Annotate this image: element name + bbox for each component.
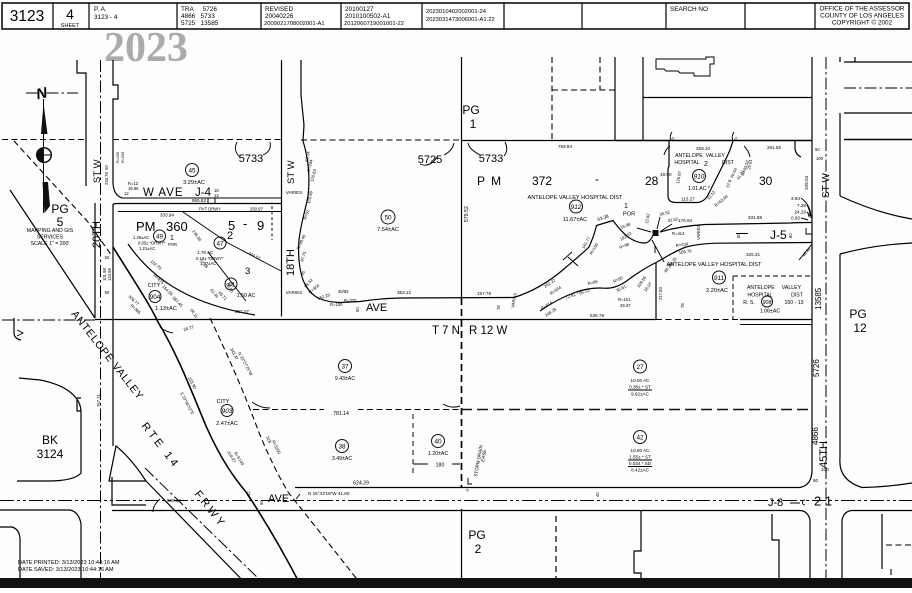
svg-text:908: 908 — [763, 300, 772, 306]
svg-text:TRA 5726: TRA 5726 — [181, 6, 217, 13]
svg-text:12: 12 — [214, 193, 219, 198]
svg-text:157.78: 157.78 — [477, 291, 491, 296]
svg-text:40: 40 — [595, 492, 600, 497]
svg-text:1: 1 — [624, 203, 628, 210]
svg-text:1.06±AC: 1.06±AC — [760, 309, 780, 315]
svg-text:2010100502-A1: 2010100502-A1 — [345, 13, 391, 20]
svg-text:12: 12 — [853, 321, 867, 335]
svg-text:13585: 13585 — [814, 287, 823, 310]
svg-text:3: 3 — [245, 266, 250, 277]
svg-text:45: 45 — [188, 168, 196, 175]
svg-text:45TH: 45TH — [818, 441, 830, 468]
svg-text:ANTELOPE VALLEY HOSPITAL DIST: ANTELOPE VALLEY HOSPITAL DIST — [667, 262, 763, 268]
svg-text:VARIES: VARIES — [286, 190, 303, 195]
svg-text:2.20±AC: 2.20±AC — [706, 288, 728, 294]
svg-text:50: 50 — [355, 307, 360, 312]
svg-text:DIST: DIST — [722, 160, 735, 166]
svg-text:2.47±AC: 2.47±AC — [216, 421, 238, 427]
svg-text:3.94: 3.94 — [791, 196, 800, 201]
svg-text:0.034 * SD: 0.034 * SD — [629, 461, 652, 466]
svg-text:781.14: 781.14 — [333, 411, 349, 417]
svg-text:42: 42 — [636, 435, 644, 442]
svg-text:R=100: R=100 — [330, 302, 343, 307]
svg-text:8.42±AC: 8.42±AC — [631, 468, 650, 473]
svg-text:759.94: 759.94 — [558, 144, 572, 149]
svg-text:P M: P M — [477, 174, 503, 188]
svg-text:904: 904 — [150, 294, 161, 301]
svg-text:12: 12 — [124, 191, 129, 196]
svg-text:180: 180 — [436, 463, 445, 469]
svg-text:ANTELOPE VALLEY: ANTELOPE VALLEY — [675, 153, 725, 159]
svg-text:2: 2 — [704, 161, 708, 168]
svg-text:HOSPITAL: HOSPITAL — [674, 160, 699, 166]
svg-text:3123 - 4: 3123 - 4 — [94, 14, 118, 21]
svg-text:50: 50 — [384, 215, 392, 222]
svg-text:113.27: 113.27 — [681, 197, 695, 202]
svg-text:150 - 13: 150 - 13 — [784, 300, 803, 306]
svg-text:37: 37 — [341, 364, 349, 371]
svg-text:-: - — [595, 172, 599, 186]
svg-text:4866 5733: 4866 5733 — [181, 13, 215, 20]
svg-text:7.54±AC: 7.54±AC — [377, 227, 399, 233]
svg-text:20100127: 20100127 — [345, 6, 374, 13]
svg-text:5726: 5726 — [812, 359, 821, 377]
svg-text:SHEET: SHEET — [61, 23, 80, 29]
svg-text:1.26±AC: 1.26±AC — [133, 235, 149, 240]
svg-text:257.07: 257.07 — [235, 309, 249, 314]
svg-text:3124: 3124 — [37, 447, 64, 461]
svg-text:250.97: 250.97 — [250, 207, 263, 212]
svg-text:PM: PM — [136, 219, 156, 234]
svg-text:30: 30 — [759, 174, 773, 188]
svg-text:123.99: 123.99 — [107, 268, 112, 281]
svg-text:PVT DRWY: PVT DRWY — [199, 207, 221, 212]
svg-text:J-5: J-5 — [770, 228, 787, 242]
svg-text:2023010402002001-24: 2023010402002001-24 — [426, 9, 487, 15]
svg-text:47: 47 — [216, 241, 224, 248]
svg-text:CITY: CITY — [148, 283, 161, 289]
svg-text:OFFICE OF THE ASSESSOR: OFFICE OF THE ASSESSOR — [819, 6, 904, 13]
svg-text:1.55± * ST: 1.55± * ST — [629, 455, 651, 460]
svg-text:28: 28 — [645, 174, 659, 188]
svg-text:1.50 AC: 1.50 AC — [237, 293, 256, 299]
svg-text:ANTELOPE VALLEY: ANTELOPE VALLEY — [747, 285, 802, 291]
svg-text:49: 49 — [156, 234, 164, 241]
svg-text:1.13±AC: 1.13±AC — [155, 306, 177, 312]
svg-text:-: - — [243, 216, 247, 231]
svg-text:R=200: R=200 — [116, 152, 120, 163]
svg-text:5: 5 — [57, 215, 64, 229]
svg-text:16.95: 16.95 — [128, 186, 139, 191]
svg-text:2012060719001001-22: 2012060719001001-22 — [344, 21, 404, 27]
svg-text:COUNTY OF LOS ANGELES: COUNTY OF LOS ANGELES — [820, 13, 904, 20]
svg-text:333.94: 333.94 — [160, 213, 174, 218]
svg-text:217.83: 217.83 — [658, 287, 663, 300]
svg-text:50: 50 — [105, 255, 110, 260]
svg-text:7.28: 7.28 — [797, 203, 806, 208]
svg-text:2009021708002001-A1: 2009021708002001-A1 — [264, 21, 325, 27]
svg-text:MAPPING AND GIS: MAPPING AND GIS — [27, 228, 74, 234]
svg-text:W AVE: W AVE — [143, 187, 184, 199]
svg-text:19.50: 19.50 — [660, 172, 672, 177]
svg-text:1.21±AC: 1.21±AC — [139, 246, 155, 251]
svg-text:POR: POR — [623, 212, 635, 218]
svg-text:N 16°43'18"W 41.80: N 16°43'18"W 41.80 — [308, 491, 350, 496]
svg-text:261.55: 261.55 — [767, 145, 781, 150]
svg-text:R=203: R=203 — [121, 152, 125, 163]
svg-text:DATE SAVED: 3/13/2023 10:44:16: DATE SAVED: 3/13/2023 10:44:16 AM — [18, 567, 114, 573]
svg-text:50: 50 — [259, 500, 264, 505]
svg-text:30/93: 30/93 — [338, 289, 349, 294]
svg-text:3.29±AC: 3.29±AC — [183, 180, 205, 186]
svg-text:910: 910 — [694, 174, 705, 181]
svg-text:DIST: DIST — [791, 293, 804, 299]
svg-text:233.79 50: 233.79 50 — [104, 165, 109, 185]
svg-text:AVE: AVE — [366, 302, 387, 314]
svg-text:0.93: 0.93 — [791, 216, 800, 221]
svg-text:27: 27 — [636, 364, 644, 371]
svg-text:100: 100 — [816, 156, 824, 161]
svg-text:T 7 N: T 7 N — [432, 325, 460, 337]
svg-text:P. A.: P. A. — [94, 6, 107, 13]
svg-text:78: 78 — [496, 305, 501, 310]
svg-text:2 1: 2 1 — [814, 494, 832, 509]
svg-text:10.00 AC: 10.00 AC — [631, 448, 651, 453]
svg-text:R=414: R=414 — [672, 231, 685, 236]
svg-text:0.05± *DRWY*: 0.05± *DRWY* — [138, 241, 166, 246]
svg-text:40: 40 — [434, 439, 442, 446]
svg-text:12: 12 — [246, 491, 251, 496]
svg-text:BK: BK — [42, 433, 58, 447]
svg-text:372: 372 — [532, 174, 552, 188]
svg-text:9.43±AC: 9.43±AC — [335, 376, 355, 382]
svg-text:4: 4 — [66, 6, 74, 22]
svg-text:538.78: 538.78 — [590, 313, 604, 318]
svg-text:50: 50 — [815, 147, 820, 152]
svg-text:331.68: 331.68 — [748, 215, 762, 220]
svg-text:J-8: J-8 — [768, 497, 783, 509]
svg-text:2023031473006001-A1.22: 2023031473006001-A1.22 — [426, 17, 495, 23]
svg-text:10.00 AC: 10.00 AC — [631, 378, 651, 383]
svg-text:3.49±AC: 3.49±AC — [332, 456, 352, 462]
svg-text:PG: PG — [462, 103, 479, 117]
svg-text:SEARCH NO: SEARCH NO — [670, 6, 708, 13]
svg-text:REVISED: REVISED — [265, 6, 293, 13]
svg-text:0.38± * ST: 0.38± * ST — [629, 385, 651, 390]
svg-text:1.01 AC *: 1.01 AC * — [688, 186, 710, 192]
svg-text:SCALE 1" = 200': SCALE 1" = 200' — [31, 241, 70, 247]
svg-text:PG: PG — [468, 528, 485, 542]
svg-text:78: 78 — [680, 303, 685, 308]
svg-text:3123: 3123 — [10, 8, 44, 25]
svg-text:18TH: 18TH — [285, 249, 297, 276]
svg-text:R. S.: R. S. — [743, 300, 755, 306]
svg-text:ST W: ST W — [92, 159, 103, 183]
svg-text:383.12: 383.12 — [397, 290, 411, 295]
svg-text:5733: 5733 — [479, 153, 503, 165]
svg-text:5733: 5733 — [239, 153, 263, 165]
svg-text:R=320: R=320 — [344, 298, 357, 303]
svg-text:325.31: 325.31 — [746, 252, 760, 257]
svg-text:38: 38 — [338, 444, 346, 451]
svg-text:2: 2 — [475, 542, 482, 556]
svg-text:50: 50 — [813, 478, 819, 483]
svg-text:11.67±AC: 11.67±AC — [563, 217, 587, 223]
svg-text:ST W: ST W — [286, 160, 297, 184]
svg-text:VARIES: VARIES — [696, 225, 701, 240]
svg-text:912: 912 — [571, 204, 582, 211]
svg-text:209.04: 209.04 — [804, 176, 809, 190]
svg-text:903: 903 — [222, 408, 233, 415]
svg-text:ST-W: ST-W — [821, 172, 832, 198]
svg-text:VARIES: VARIES — [286, 290, 303, 295]
svg-text:9.62±AC: 9.62±AC — [631, 392, 650, 397]
svg-text:POR: POR — [168, 242, 177, 247]
svg-text:HOSPITAL: HOSPITAL — [747, 293, 772, 299]
svg-text:865.82: 865.82 — [192, 198, 206, 203]
svg-text:50: 50 — [105, 290, 110, 295]
svg-text:R=101: R=101 — [618, 297, 631, 302]
svg-text:911: 911 — [714, 275, 725, 282]
svg-text:1: 1 — [470, 117, 477, 131]
svg-text:AVE: AVE — [268, 493, 289, 505]
svg-text:767.71: 767.71 — [96, 394, 101, 407]
svg-text:579.52: 579.52 — [464, 206, 470, 222]
svg-text:PG: PG — [51, 202, 68, 216]
svg-text:R 12 W: R 12 W — [469, 325, 507, 337]
svg-text:100: 100 — [821, 467, 829, 472]
svg-text:1.20±AC: 1.20±AC — [428, 451, 448, 457]
svg-text:2023: 2023 — [104, 25, 188, 71]
svg-text:624.29: 624.29 — [353, 481, 369, 487]
svg-text:80: 80 — [788, 233, 793, 238]
svg-text:1.75 AC: 1.75 AC — [197, 250, 214, 255]
svg-text:9: 9 — [257, 218, 264, 233]
svg-text:2: 2 — [227, 230, 233, 242]
svg-text:COPYRIGHT © 2002: COPYRIGHT © 2002 — [832, 19, 893, 27]
svg-text:DATE PRINTED: 3/13/2023 10:44:: DATE PRINTED: 3/13/2023 10:44:16 AM — [18, 560, 120, 566]
svg-text:PG: PG — [849, 307, 866, 321]
svg-text:20040226: 20040226 — [265, 13, 294, 20]
svg-text:360: 360 — [166, 219, 188, 234]
svg-text:176.64: 176.64 — [678, 218, 692, 223]
svg-text:1: 1 — [170, 235, 174, 242]
svg-text:259.10: 259.10 — [696, 146, 710, 151]
svg-text:24.26: 24.26 — [795, 210, 807, 215]
svg-text:49.37: 49.37 — [620, 303, 631, 308]
